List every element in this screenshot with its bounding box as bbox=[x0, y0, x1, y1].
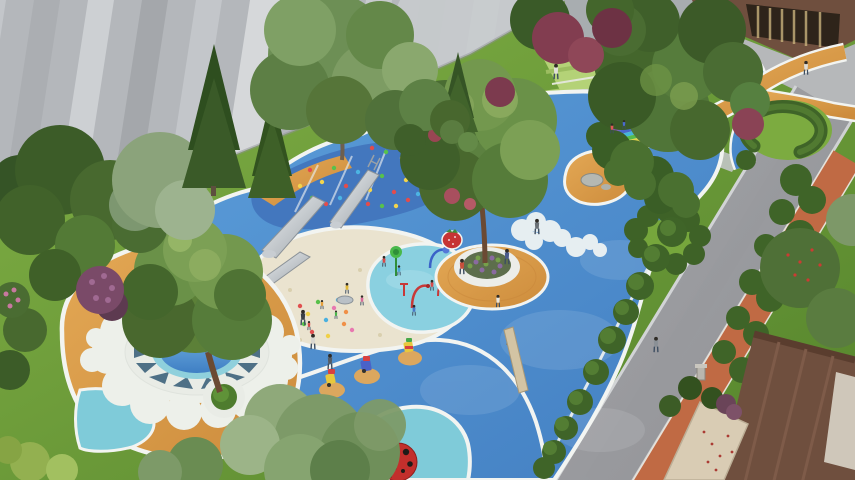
metal-sculpture bbox=[337, 296, 353, 304]
light-pillar bbox=[697, 366, 705, 380]
playground-rendering bbox=[0, 0, 855, 480]
scene-canvas bbox=[0, 0, 855, 480]
rock bbox=[581, 174, 603, 187]
red-leaf-tree bbox=[485, 77, 515, 107]
